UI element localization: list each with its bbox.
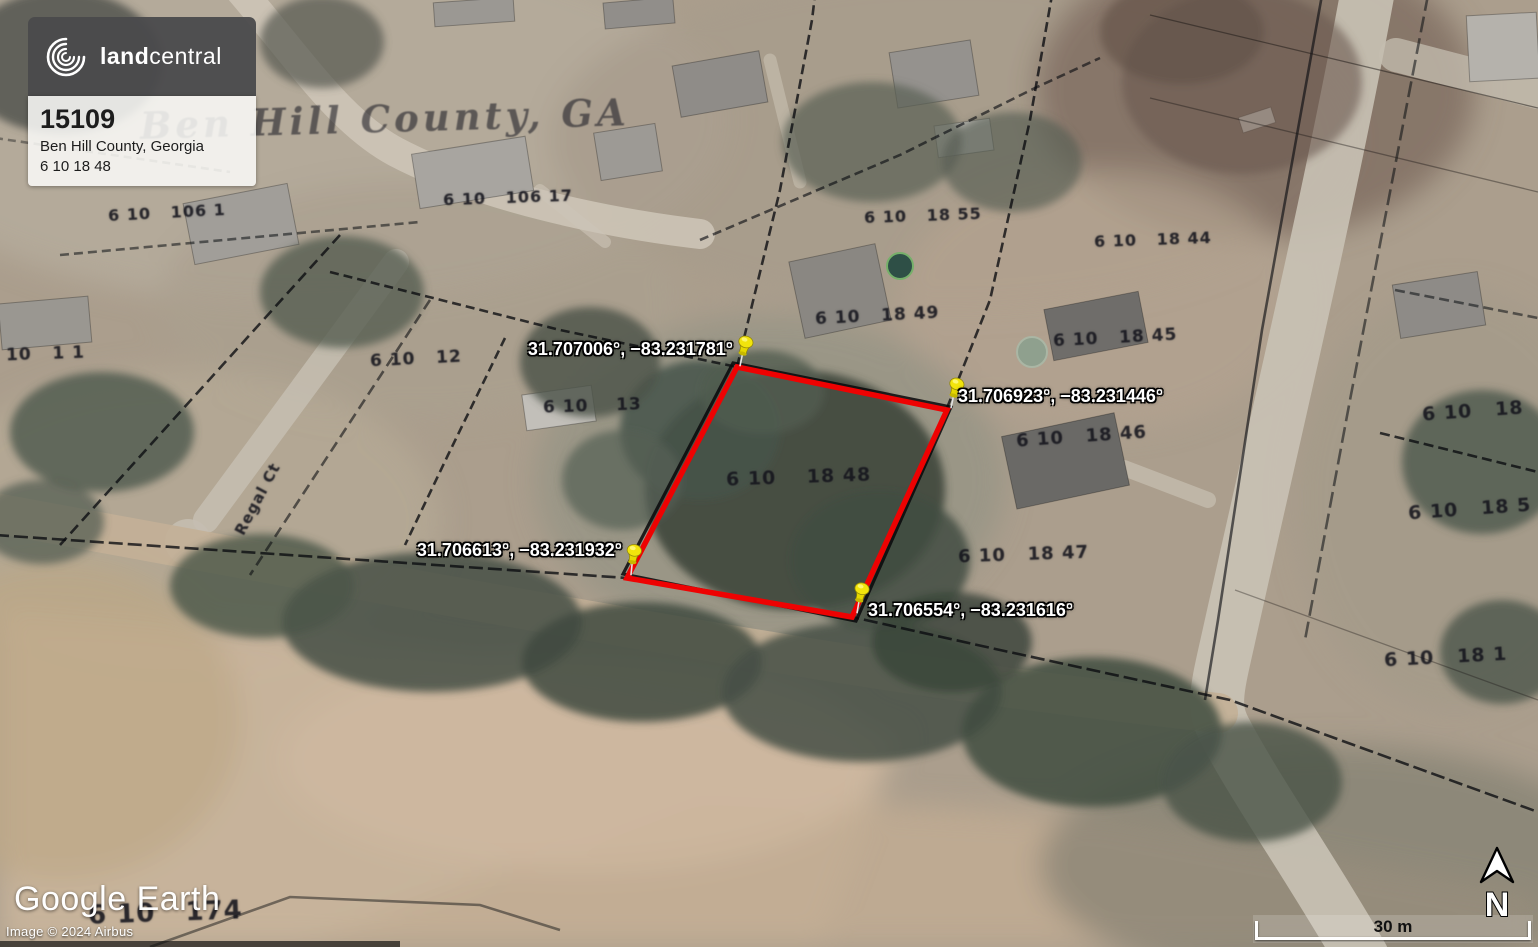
listing-location: Ben Hill County, Georgia bbox=[40, 137, 244, 157]
listing-card-body: 15109 Ben Hill County, Georgia 6 10 18 4… bbox=[28, 96, 256, 186]
landcentral-logo-icon bbox=[42, 33, 90, 81]
coordinate-label: 31.706554°, −83.231616° bbox=[868, 600, 1073, 621]
coordinate-label: 31.707006°, −83.231781° bbox=[528, 339, 733, 360]
coordinate-label: 31.706923°, −83.231446° bbox=[958, 386, 1163, 407]
imagery-attribution: Image © 2024 Airbus bbox=[6, 924, 133, 939]
listing-parcel-id: 6 10 18 48 bbox=[40, 157, 244, 177]
trampoline bbox=[887, 253, 913, 279]
round-tank bbox=[1017, 337, 1047, 367]
listing-card: landcentral 15109 Ben Hill County, Georg… bbox=[28, 17, 256, 186]
parcel-number-label: 6 10 13 bbox=[543, 394, 642, 417]
north-arrow-icon bbox=[1481, 848, 1513, 882]
north-indicator: N bbox=[1474, 846, 1522, 926]
google-earth-logo: Google Earth bbox=[14, 880, 220, 919]
landcentral-wordmark: landcentral bbox=[100, 43, 222, 70]
google-earth-logo-earth: Earth bbox=[137, 880, 221, 918]
parcel-number-label: 10 1 1 bbox=[6, 343, 86, 366]
wordmark-central: central bbox=[149, 43, 222, 69]
google-earth-logo-google: Google bbox=[14, 880, 137, 918]
coordinate-label: 31.706613°, −83.231932° bbox=[417, 540, 622, 561]
listing-id: 15109 bbox=[40, 105, 244, 133]
north-letter: N bbox=[1485, 886, 1510, 924]
bottom-shadow bbox=[0, 941, 400, 947]
map-view: Ben Hill County, GA 6 10 106 16 10 106 1… bbox=[0, 0, 1538, 947]
wordmark-land: land bbox=[100, 43, 149, 69]
listing-card-header: landcentral bbox=[28, 17, 256, 96]
